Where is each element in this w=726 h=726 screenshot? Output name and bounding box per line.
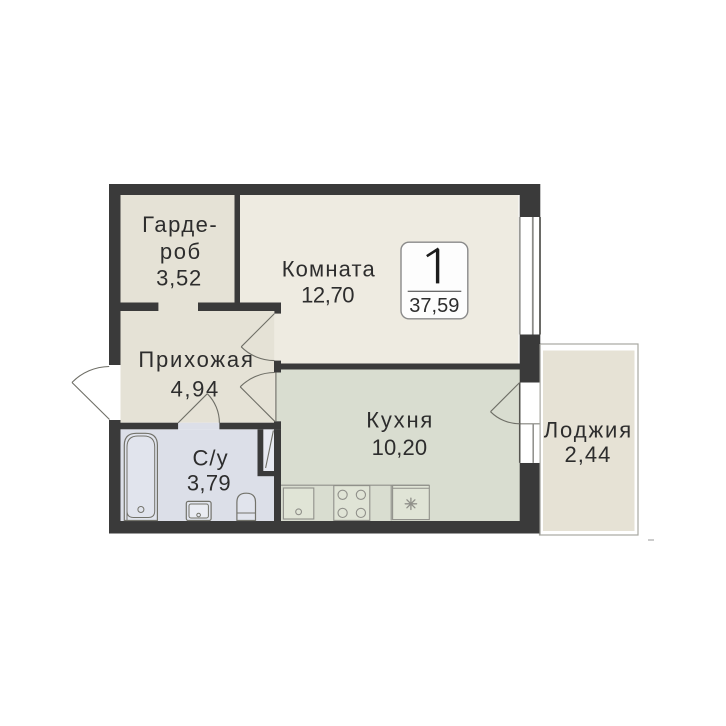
svg-text:Кухня: Кухня <box>366 408 434 433</box>
svg-text:3,79: 3,79 <box>187 471 231 496</box>
svg-text:37,59: 37,59 <box>409 295 459 317</box>
svg-text:3,52: 3,52 <box>156 266 202 291</box>
svg-text:2,44: 2,44 <box>564 442 611 467</box>
svg-text:4,94: 4,94 <box>171 376 220 401</box>
svg-text:12,70: 12,70 <box>301 282 354 307</box>
svg-text:С/у: С/у <box>192 445 228 470</box>
svg-text:10,20: 10,20 <box>372 435 428 460</box>
svg-text:Гарде-: Гарде- <box>142 212 218 237</box>
svg-text:Комната: Комната <box>282 256 376 281</box>
svg-text:Лоджия: Лоджия <box>544 418 633 443</box>
svg-text:Прихожая: Прихожая <box>138 347 254 372</box>
svg-text:роб: роб <box>160 239 202 264</box>
